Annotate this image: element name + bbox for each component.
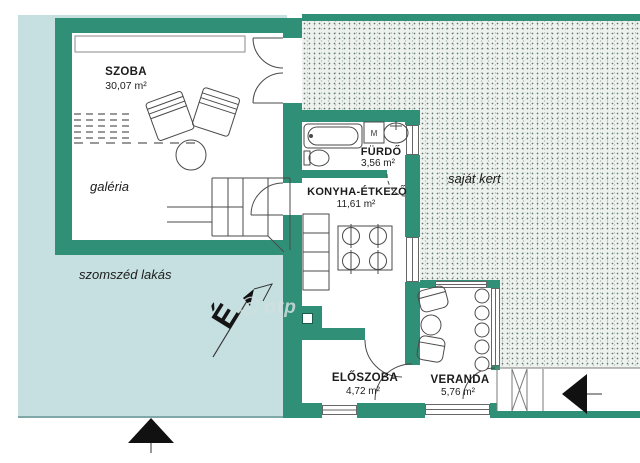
south-wall-seg1	[283, 403, 322, 418]
kitchen-window	[406, 237, 419, 282]
szoba-garden-door-gap	[283, 38, 302, 103]
entrance-marker-south	[128, 418, 174, 453]
veranda-top-window	[435, 281, 487, 288]
east-wall-seg2	[405, 155, 420, 237]
chimney-flue-hole	[302, 313, 313, 324]
szoba-area: 30,07 m²	[105, 81, 146, 92]
kitchen-hall-interior	[302, 178, 405, 403]
entrance-marker-east	[562, 374, 602, 414]
eloszoba-area: 4,72 m²	[346, 387, 380, 397]
hall-top-wall	[294, 328, 365, 340]
konyha-label: KONYHA-ÉTKEZŐ	[307, 187, 407, 198]
veranda-label: VERANDA	[431, 375, 490, 387]
szoba-label: SZOBA	[105, 67, 147, 79]
veranda-entry-door-gap	[491, 368, 500, 403]
szoba-kitchen-door-gap	[283, 183, 302, 215]
south-wall-seg2	[357, 403, 425, 418]
watermark: ⓒ otp	[238, 292, 297, 319]
garden-label: saját kert	[448, 172, 501, 185]
east-wall-seg3	[405, 282, 420, 365]
neighbor-label: szomszéd lakás	[79, 268, 171, 281]
east-wall-seg1	[405, 110, 420, 125]
szoba-top-wall	[55, 18, 302, 33]
floorplan-page: ⓒ otp	[0, 0, 640, 463]
furdo-area: 3,56 m²	[361, 159, 395, 169]
szoba-left-wall	[55, 18, 72, 255]
bathroom-door-gap	[387, 170, 405, 178]
garden-top-wall	[302, 14, 640, 21]
south-wall-seg3	[490, 403, 497, 418]
hall-veranda-door-gap	[405, 365, 420, 403]
veranda-glass-wall	[491, 288, 500, 366]
galeria-label: galéria	[90, 180, 129, 193]
szoba-bottom-wall	[55, 240, 302, 255]
szoba-interior	[72, 33, 283, 240]
hall-south-window	[322, 405, 357, 415]
bathroom-bottom-wall	[302, 170, 387, 178]
veranda-area: 5,76 m²	[441, 388, 475, 398]
garden-bottom-bar	[497, 411, 640, 418]
veranda-south-window	[425, 404, 490, 415]
szoba-right-wall-upper	[283, 18, 302, 38]
bathroom-window	[406, 125, 419, 155]
furdo-label: FÜRDŐ	[361, 147, 402, 158]
eloszoba-label: ELŐSZOBA	[332, 373, 398, 385]
garden-steps	[497, 368, 640, 411]
bathroom-top-wall	[287, 110, 420, 122]
konyha-area: 11,61 m²	[337, 200, 376, 210]
